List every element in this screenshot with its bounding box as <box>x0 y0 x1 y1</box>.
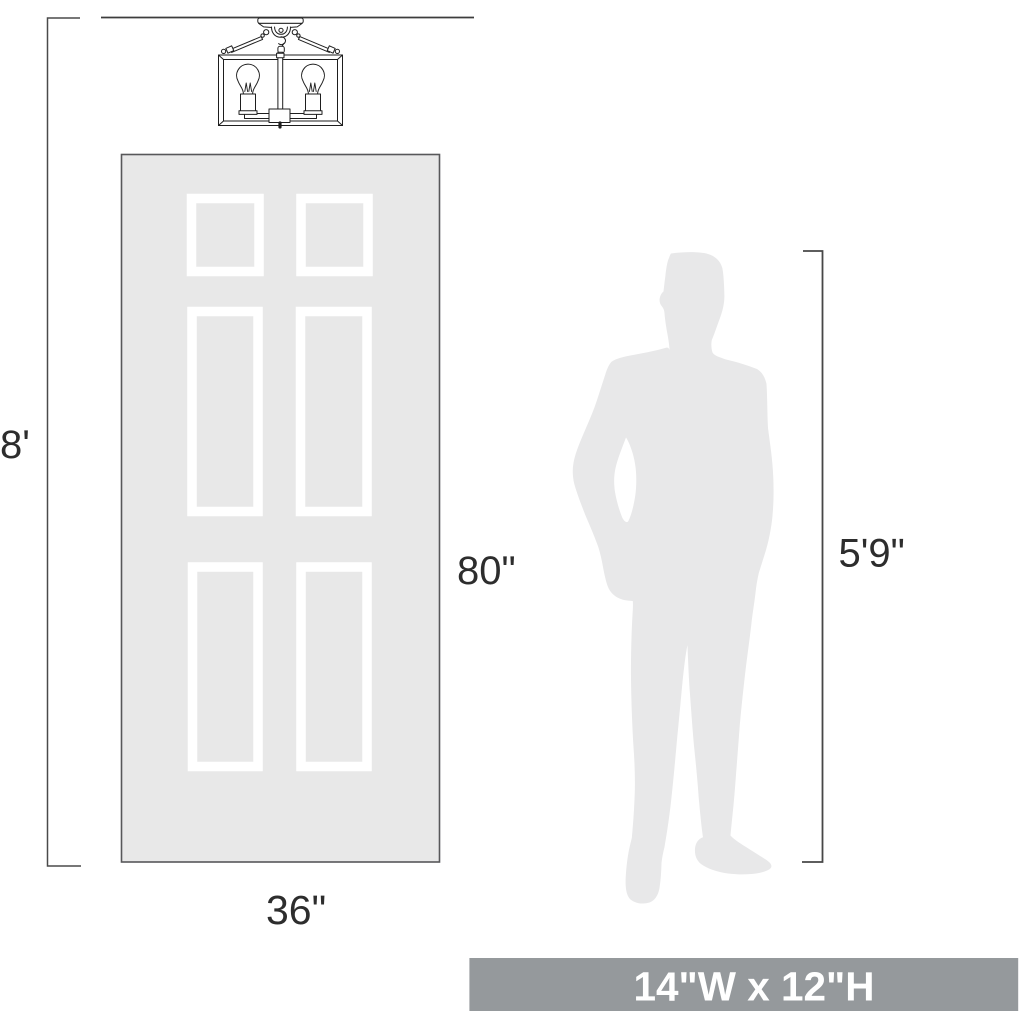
svg-text:8': 8' <box>0 423 30 467</box>
svg-text:36": 36" <box>266 887 326 933</box>
svg-text:5'9": 5'9" <box>839 532 905 576</box>
svg-text:14"W x 12"H: 14"W x 12"H <box>633 964 874 1010</box>
svg-text:80": 80" <box>457 549 516 593</box>
